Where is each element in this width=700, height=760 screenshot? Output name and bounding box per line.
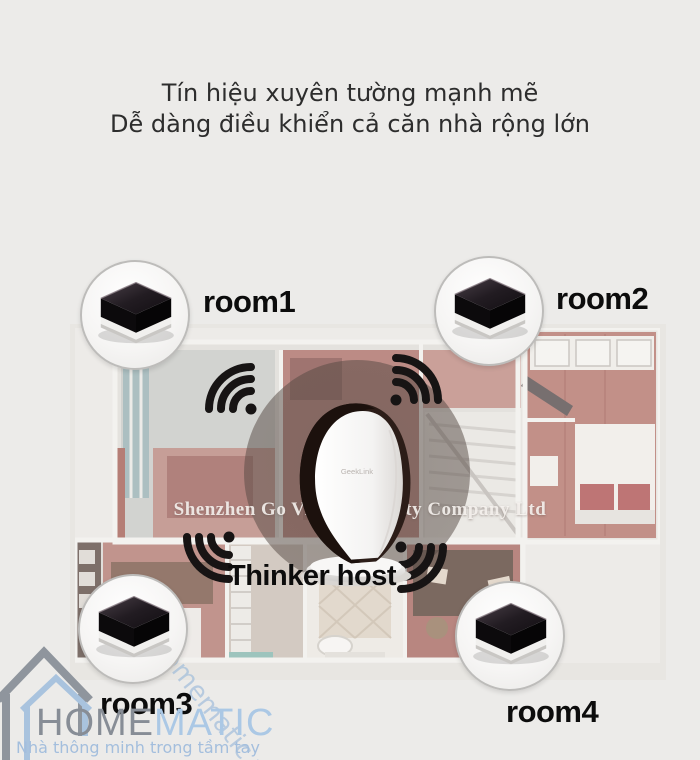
headline-line2: Dễ dàng điều khiển cả căn nhà rộng lớn	[0, 109, 700, 140]
smart-box-device-illustration	[446, 273, 534, 351]
room2-label: room2	[556, 281, 648, 317]
host-device-logo: GeekLink	[341, 467, 373, 476]
smart-box-device-illustration	[467, 598, 555, 676]
headline: Tín hiệu xuyên tường mạnh mẽ Dễ dàng điề…	[0, 78, 700, 140]
smart-box-device-illustration	[92, 277, 180, 355]
brand-tagline: Nhà thông minh trong tầm tay	[16, 738, 260, 757]
room1-device-circle	[80, 260, 190, 370]
brand-name: HOMEMATIC	[36, 704, 274, 742]
room4-label: room4	[506, 694, 598, 730]
headline-line1: Tín hiệu xuyên tường mạnh mẽ	[0, 78, 700, 109]
promo-image: Tín hiệu xuyên tường mạnh mẽ Dễ dàng điề…	[0, 0, 700, 760]
room4-device-circle	[455, 581, 565, 691]
wifi-signal-icon	[192, 350, 264, 422]
thinker-host-label: Thinker host	[228, 560, 488, 593]
room3-device-circle	[78, 574, 188, 684]
smart-box-device-illustration	[90, 591, 178, 669]
room1-label: room1	[203, 284, 295, 320]
room2-device-circle	[434, 256, 544, 366]
